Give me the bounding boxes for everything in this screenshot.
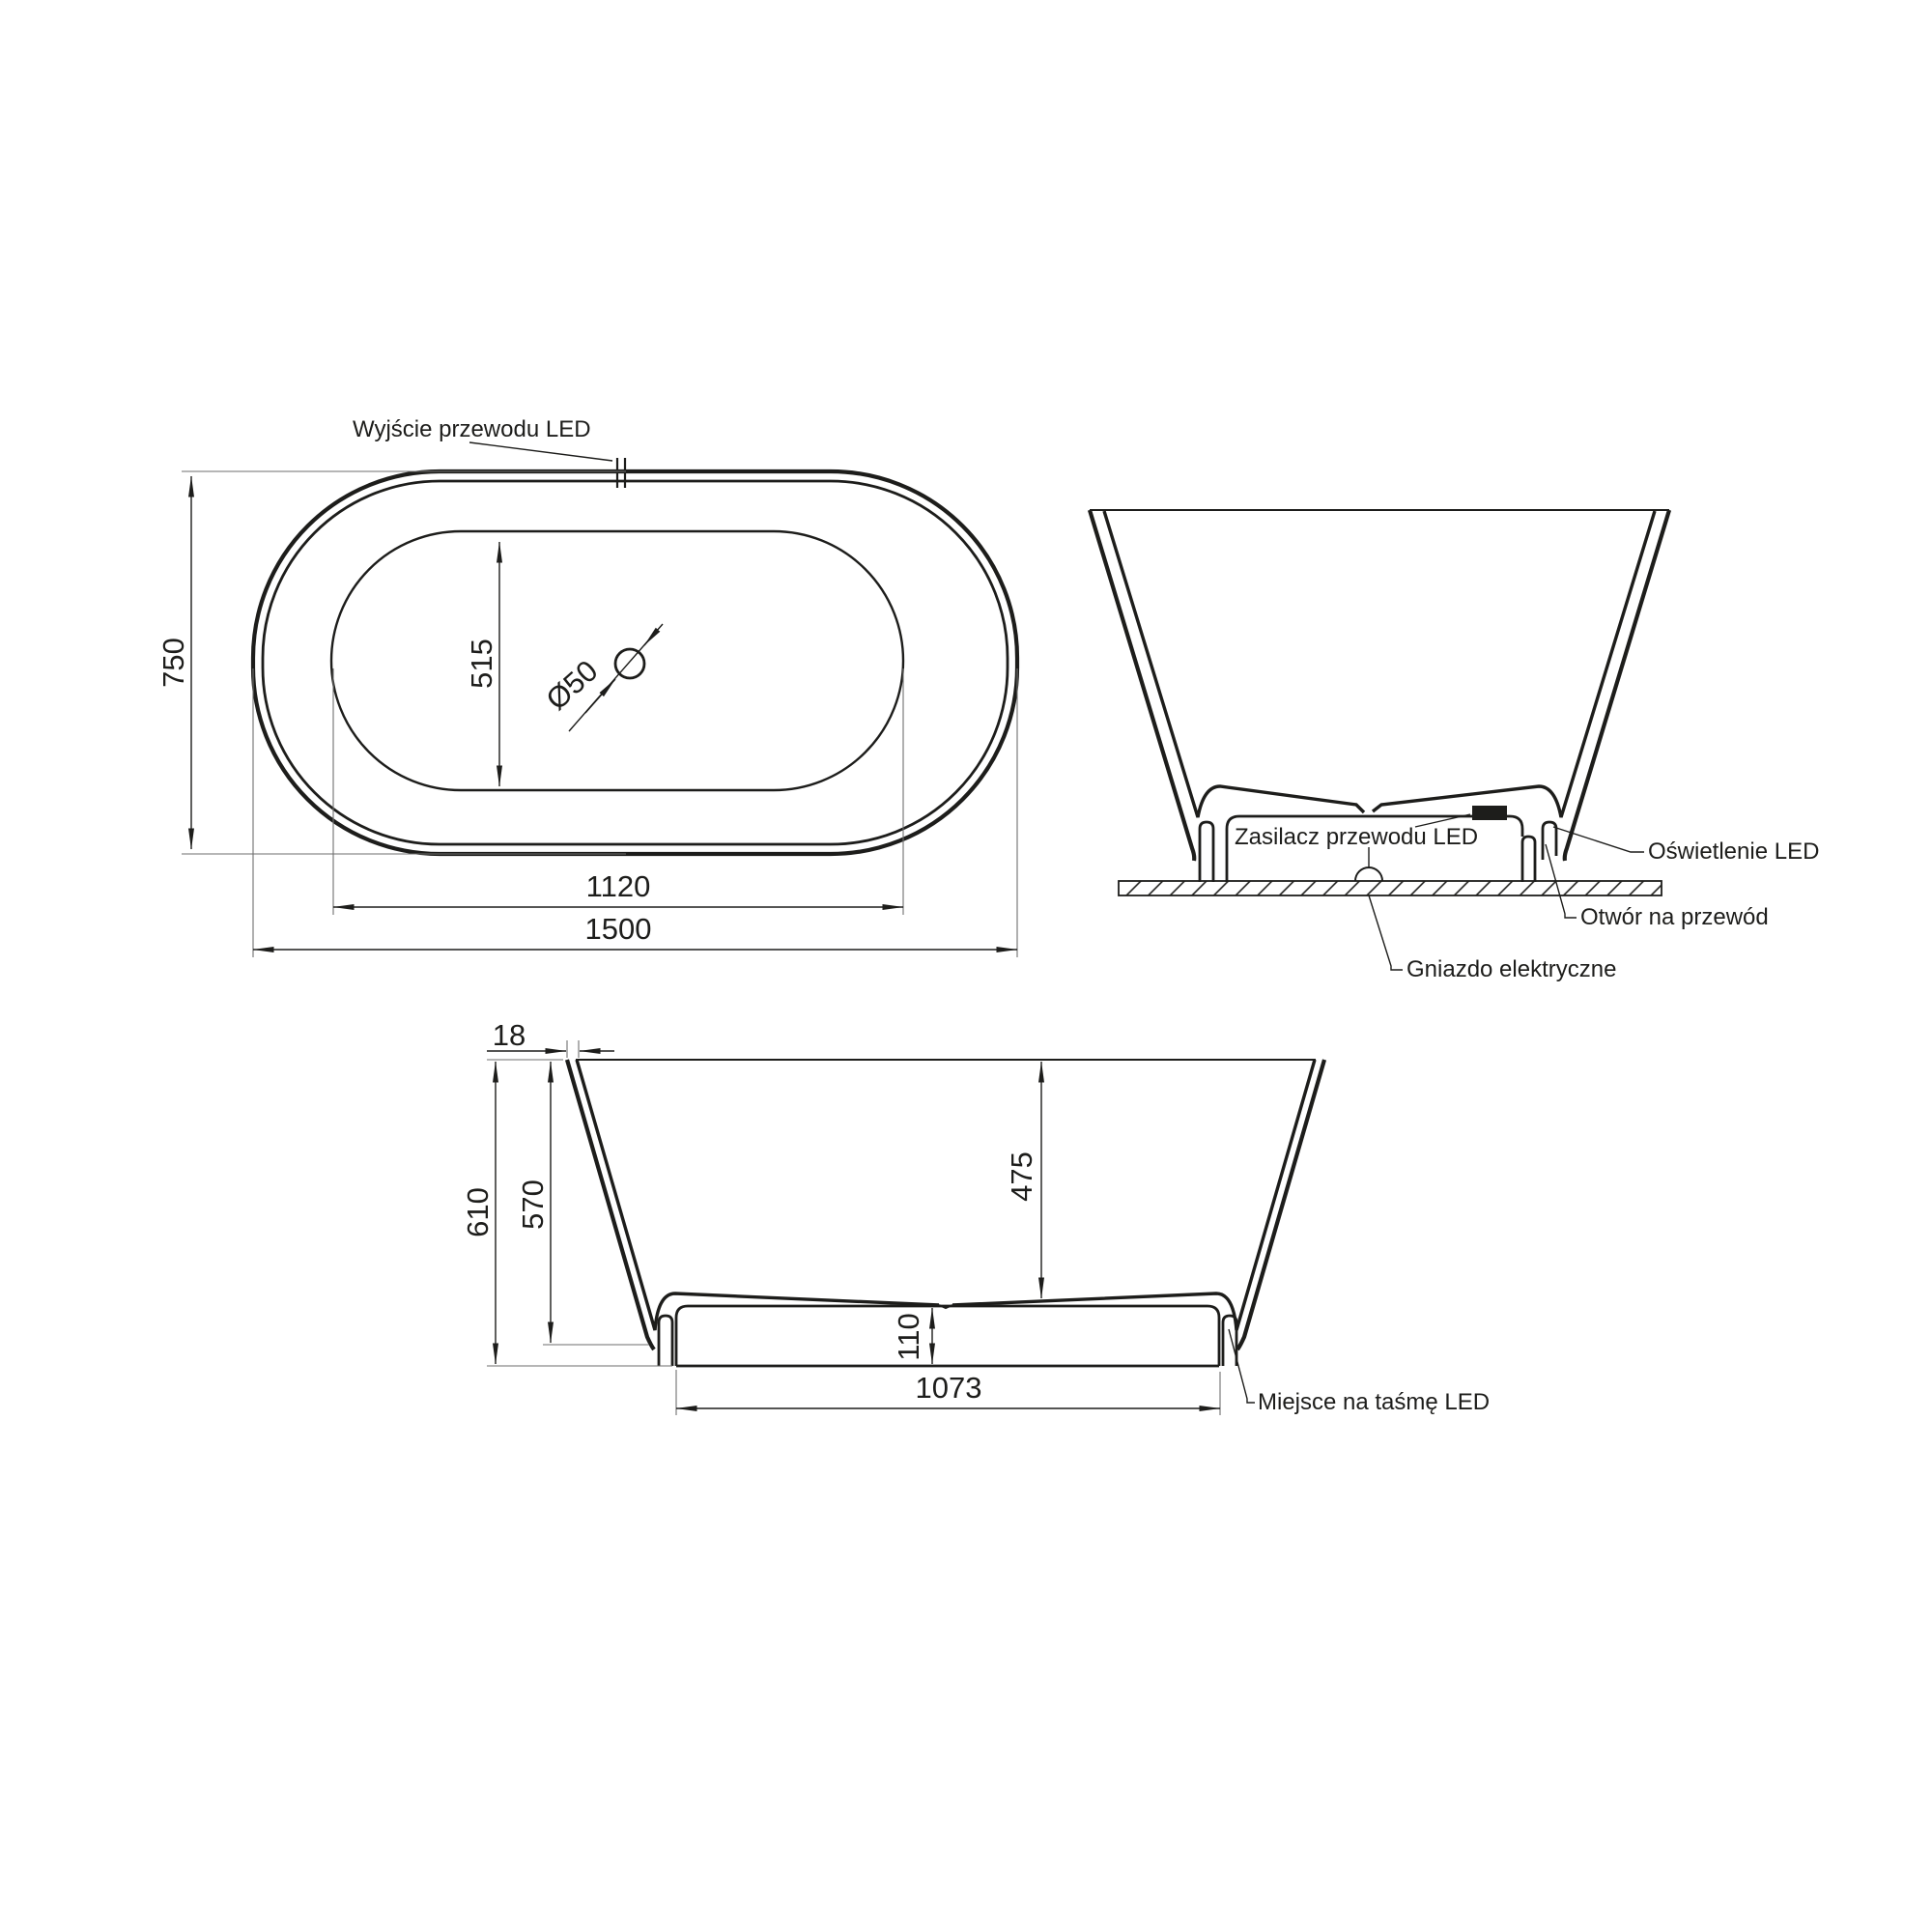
dim-1500-value: 1500 <box>585 912 652 946</box>
side-view-left-wall-inner-floor <box>577 1060 939 1330</box>
dim-1073-value: 1073 <box>916 1371 982 1405</box>
power-supply-label: Zasilacz przewodu LED <box>1235 824 1478 850</box>
led-exit-leader-line <box>469 442 612 461</box>
tub-basin-outline <box>331 531 903 790</box>
dim-515: 515 <box>465 542 499 786</box>
dim-1120-value: 1120 <box>586 869 651 903</box>
end-view-right-wall-inner-floor <box>1373 511 1655 817</box>
dim-570: 570 <box>516 1062 649 1345</box>
end-view-left-foot-channel <box>1200 822 1213 882</box>
end-view-left-wall-inner-floor <box>1104 511 1364 817</box>
dim-750-value: 750 <box>156 638 190 688</box>
dim-110: 110 <box>892 1308 932 1364</box>
cable-hole-label: Otwór na przewód <box>1580 904 1769 930</box>
electrical-socket-icon <box>1355 867 1382 881</box>
dim-110-value: 110 <box>892 1313 925 1360</box>
floor-hatch-strip <box>1119 881 1662 895</box>
socket-label: Gniazdo elektryczne <box>1406 956 1616 982</box>
dim-1120: 1120 <box>333 668 903 915</box>
technical-drawing-page: Ø50 Wyjście przewodu LED 750 515 1120 <box>0 0 1932 1932</box>
drain-circle-icon <box>615 649 644 678</box>
side-view-plinth <box>676 1306 1219 1366</box>
dim-1500: 1500 <box>253 668 1017 957</box>
drain-arrow-upper <box>644 631 657 645</box>
bathtub-technical-drawing: Ø50 Wyjście przewodu LED 750 515 1120 <box>0 0 1932 1932</box>
dim-475: 475 <box>1005 1062 1041 1298</box>
end-view-right-foot-channel <box>1522 837 1535 882</box>
end-view-left-wall-outer <box>1090 510 1194 861</box>
plan-view: Ø50 Wyjście przewodu LED 750 515 1120 <box>156 416 1017 957</box>
led-power-supply-box-icon <box>1472 806 1507 820</box>
dim-18-value: 18 <box>493 1018 526 1052</box>
side-section-view: 18 610 570 475 110 1 <box>461 1018 1490 1415</box>
dim-1073: 1073 <box>676 1370 1220 1415</box>
drain-diameter-value: Ø50 <box>539 654 604 717</box>
led-strip-label: Miejsce na taśmę LED <box>1258 1389 1490 1415</box>
side-view-right-wall-outer <box>1237 1060 1324 1350</box>
dim-610-value: 610 <box>461 1187 495 1237</box>
side-view-left-wall-outer <box>567 1060 654 1350</box>
socket-leader <box>1369 895 1403 970</box>
dim-18: 18 <box>487 1018 614 1058</box>
end-section-view: Zasilacz przewodu LED Oświetlenie LED Ot… <box>1090 510 1819 982</box>
led-lighting-label: Oświetlenie LED <box>1648 838 1819 865</box>
side-view-left-foot-channel <box>659 1316 672 1366</box>
led-exit-label: Wyjście przewodu LED <box>353 416 591 442</box>
dim-475-value: 475 <box>1005 1151 1038 1202</box>
dim-515-value: 515 <box>465 639 498 689</box>
dim-570-value: 570 <box>516 1179 550 1230</box>
end-view-right-wall-outer <box>1565 510 1669 861</box>
dim-750: 750 <box>156 471 626 854</box>
